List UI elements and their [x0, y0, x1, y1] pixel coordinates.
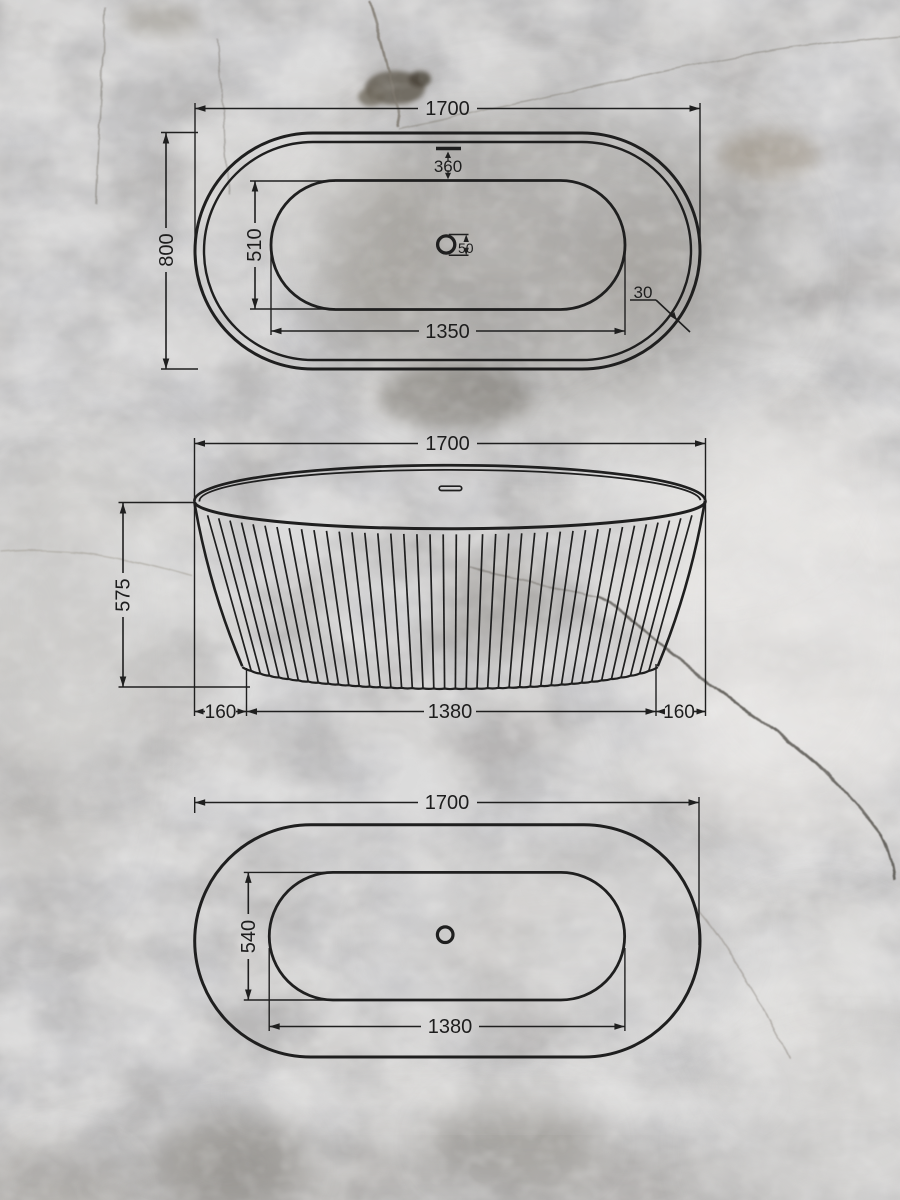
svg-text:510: 510 [244, 228, 266, 261]
svg-text:30: 30 [634, 283, 653, 302]
svg-text:360: 360 [434, 157, 462, 176]
svg-text:1700: 1700 [425, 792, 470, 814]
svg-text:800: 800 [156, 233, 178, 266]
svg-text:160: 160 [205, 702, 237, 723]
svg-text:1700: 1700 [425, 98, 470, 120]
svg-text:1700: 1700 [425, 433, 470, 455]
svg-text:1380: 1380 [428, 1016, 473, 1038]
svg-text:575: 575 [113, 578, 135, 611]
svg-text:160: 160 [663, 702, 695, 723]
svg-text:540: 540 [238, 920, 260, 953]
svg-text:1350: 1350 [425, 321, 470, 343]
svg-text:1380: 1380 [428, 701, 473, 723]
